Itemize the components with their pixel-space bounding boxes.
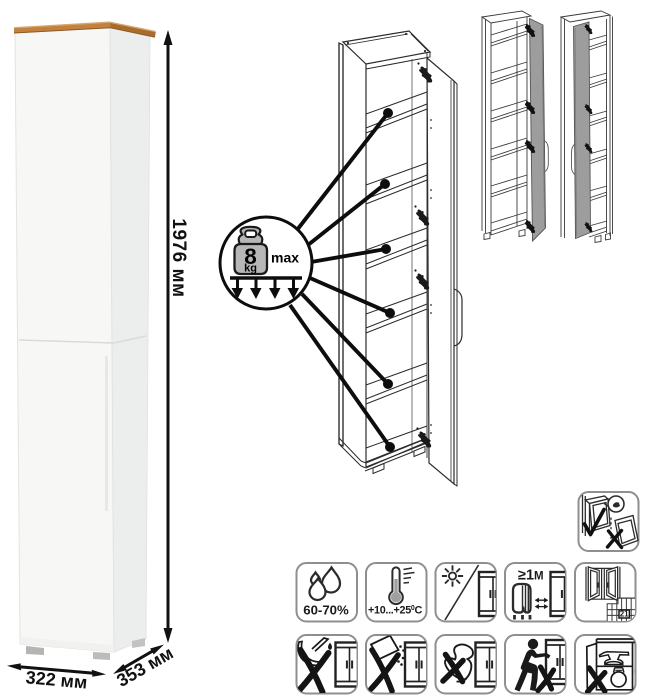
svg-text:60-70%: 60-70% [303,603,349,618]
svg-text:kg: kg [244,263,257,275]
svg-text:1976 мм: 1976 мм [168,218,189,297]
svg-text:322 мм: 322 мм [25,667,88,692]
svg-text:21: 21 [620,610,629,619]
svg-text:+10...+250C: +10...+250C [368,605,423,617]
svg-text:≥1M: ≥1M [518,568,544,584]
svg-text:max: max [271,250,299,266]
